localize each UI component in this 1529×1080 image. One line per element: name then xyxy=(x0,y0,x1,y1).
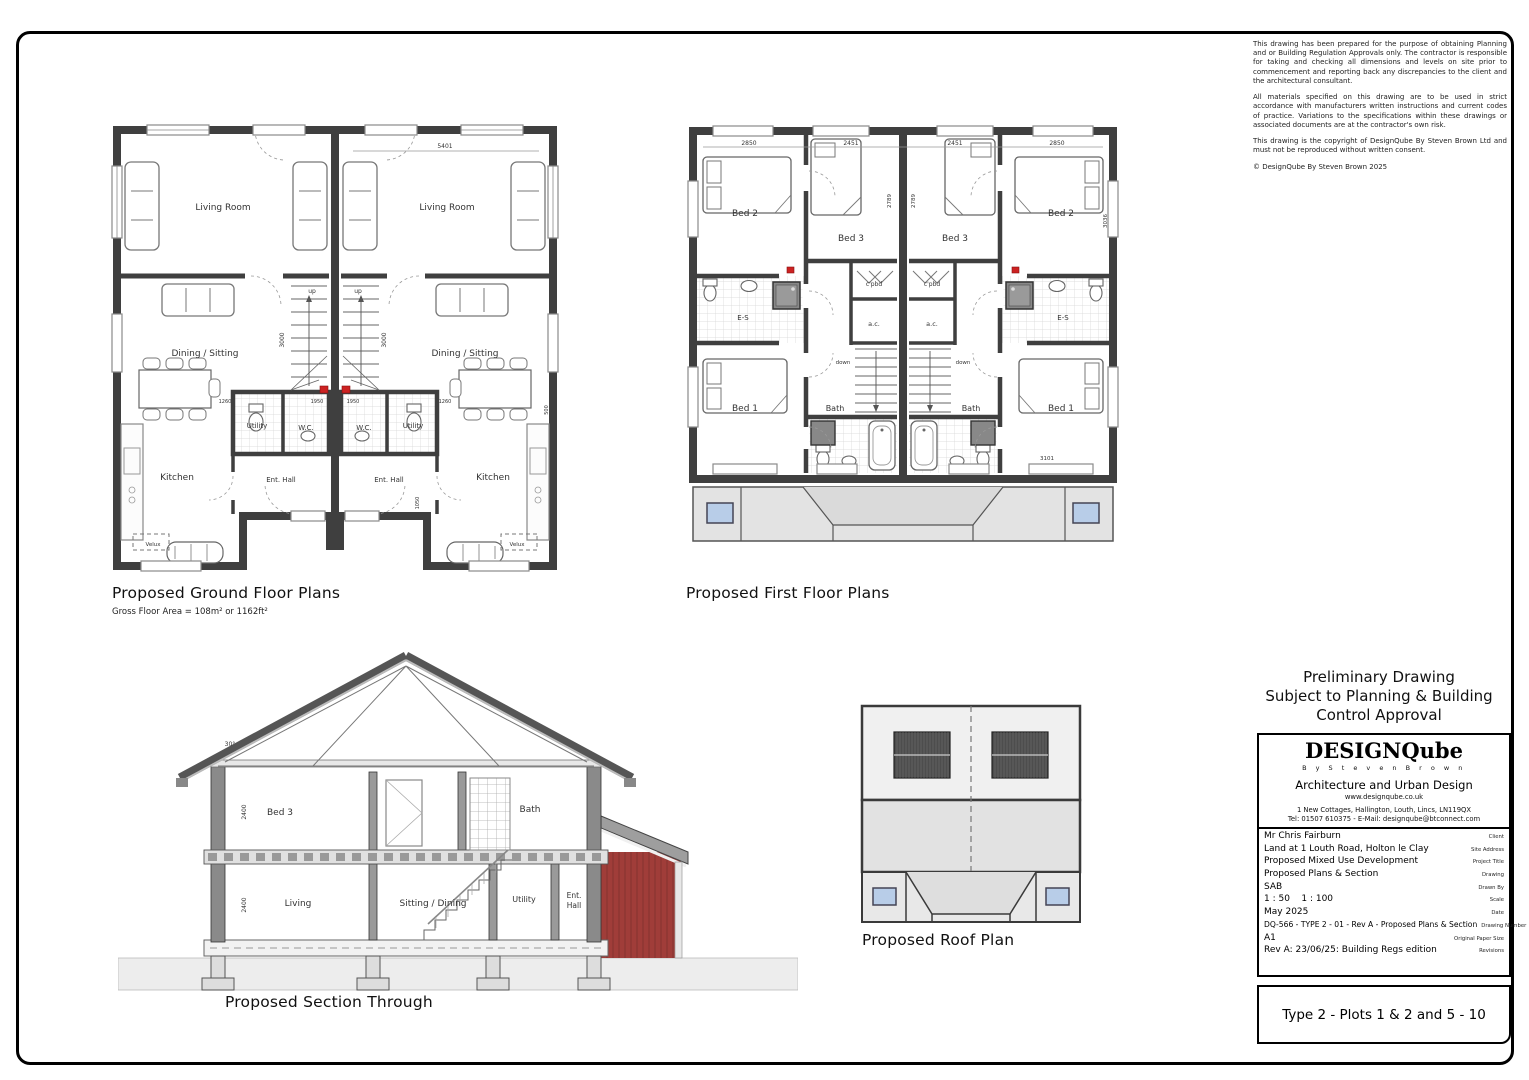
ff-room-label: Bed 1 xyxy=(732,404,758,414)
section-outbuilding xyxy=(601,816,688,958)
section-tiled-wall xyxy=(470,778,510,850)
plot-title-box: Type 2 - Plots 1 & 2 and 5 - 10 xyxy=(1257,985,1511,1044)
paper-size-value: A1 xyxy=(1264,933,1276,943)
gf-up-label: up xyxy=(354,288,362,295)
section-room-label: Bed 3 xyxy=(267,808,293,818)
gf-room-label: Kitchen xyxy=(160,473,194,483)
section-room-label: Sitting / Dining xyxy=(400,899,467,909)
drawn-by-label: Drawn By xyxy=(1478,885,1504,891)
skylight xyxy=(873,888,896,905)
gf-dim: 1950 xyxy=(311,399,324,405)
section-room-label: Ent. xyxy=(567,891,582,900)
title-block-row: Land at 1 Louth Road, Holton le Clay Sit… xyxy=(1259,844,1509,857)
ff-room-label: c'pbd xyxy=(924,281,941,288)
ff-dim: 2789 xyxy=(911,194,917,208)
ff-dim: 2451 xyxy=(843,140,858,147)
logo-subtitle: B y S t e v e n B r o w n xyxy=(1259,764,1509,772)
title-block: DESIGNQube B y S t e v e n B r o w n Arc… xyxy=(1257,733,1511,977)
gf-dim: 1050 xyxy=(415,497,421,510)
ground-floor-subtitle: Gross Floor Area = 108m² or 1162ft² xyxy=(112,607,268,617)
drawing-value: Proposed Plans & Section xyxy=(1264,869,1378,879)
title-block-row: 1 : 50 1 : 100 Scale xyxy=(1259,894,1509,907)
gf-room-label: Utility xyxy=(247,422,268,430)
project-title-value: Proposed Mixed Use Development xyxy=(1264,856,1418,866)
first-floor-title: Proposed First Floor Plans xyxy=(686,584,890,602)
drawing-number-label: Drawing Number xyxy=(1481,923,1526,929)
title-block-row: May 2025 Date xyxy=(1259,907,1509,920)
revisions-label: Revisions xyxy=(1479,948,1504,954)
gf-room-label: Ent. Hall xyxy=(266,476,296,484)
section-title: Proposed Section Through xyxy=(225,993,433,1011)
project-title-label: Project Title xyxy=(1473,859,1504,865)
ff-room-label: Bed 2 xyxy=(1048,209,1074,219)
ff-down-label: down xyxy=(836,360,851,366)
gf-room-label: Living Room xyxy=(195,203,250,213)
roof-lower-band xyxy=(862,872,1080,922)
solar-panel xyxy=(992,732,1048,778)
gf-dim: 1260 xyxy=(219,399,232,405)
date-value: May 2025 xyxy=(1264,907,1308,917)
ff-dim: 3101 xyxy=(1040,456,1054,462)
section-room-label: Living xyxy=(285,899,312,909)
disclaimer-notes: This drawing has been prepared for the p… xyxy=(1253,40,1507,179)
roof-plan-title: Proposed Roof Plan xyxy=(862,931,1014,949)
drawing-sheet: Living Room Dining / Sitting Kitchen Uti… xyxy=(0,0,1529,1080)
skylight xyxy=(707,503,733,523)
company-logo: DESIGNQube xyxy=(1259,740,1509,762)
solar-panel xyxy=(894,732,950,778)
disclaimer-paragraph: This drawing is the copyright of DesignQ… xyxy=(1253,137,1507,155)
ff-room-label: E-S xyxy=(737,314,749,322)
preliminary-line: Subject to Planning & Building xyxy=(1243,687,1515,706)
skylight xyxy=(1046,888,1069,905)
title-block-row: Proposed Mixed Use Development Project T… xyxy=(1259,856,1509,869)
gf-party-wall-fin xyxy=(326,516,344,550)
title-block-rows: Mr Chris Fairburn Client Land at 1 Louth… xyxy=(1259,829,1509,960)
ff-dim: 2789 xyxy=(887,194,893,208)
first-floor-plan: Bed 2 Bed 3 E-S c'pbd a.c. down Bed 1 Ba… xyxy=(683,121,1123,553)
scale-value: 1 : 50 1 : 100 xyxy=(1264,894,1333,904)
revisions-value: Rev A: 23/06/25: Building Regs edition xyxy=(1264,945,1437,955)
firm-address: 1 New Cottages, Hallington, Louth, Lincs… xyxy=(1259,806,1509,814)
ground-floor-title: Proposed Ground Floor Plans xyxy=(112,584,340,602)
gf-room-label: Ent. Hall xyxy=(374,476,404,484)
drawn-by-value: SAB xyxy=(1264,882,1282,892)
ff-room-label: Bed 2 xyxy=(732,209,758,219)
scale-label: Scale xyxy=(1490,897,1504,903)
date-label: Date xyxy=(1491,910,1504,916)
gf-room-label: Kitchen xyxy=(476,473,510,483)
gf-room-label: W.C. xyxy=(298,424,313,432)
disclaimer-paragraph: All materials specified on this drawing … xyxy=(1253,93,1507,130)
ff-room-label: c'pbd xyxy=(866,281,883,288)
section-dim: 2400 xyxy=(241,897,248,912)
plot-title: Type 2 - Plots 1 & 2 and 5 - 10 xyxy=(1282,1007,1486,1023)
gf-dim: 3000 xyxy=(279,332,286,347)
gf-dim: 500 xyxy=(544,405,550,415)
site-address-label: Site Address xyxy=(1471,847,1504,853)
title-block-row: Proposed Plans & Section Drawing xyxy=(1259,869,1509,882)
ff-room-label: a.c. xyxy=(868,320,880,328)
gf-up-label: up xyxy=(308,288,316,295)
gf-dim: 5401 xyxy=(437,143,452,150)
drawing-label: Drawing xyxy=(1482,872,1504,878)
client-value: Mr Chris Fairburn xyxy=(1264,831,1341,841)
gf-room-label: Living Room xyxy=(419,203,474,213)
ff-room-label: E-S xyxy=(1057,314,1069,322)
ff-dim: 2451 xyxy=(947,140,962,147)
section-room-label: Bath xyxy=(520,805,541,815)
gf-dim: 3000 xyxy=(381,332,388,347)
title-block-header: DESIGNQube B y S t e v e n B r o w n Arc… xyxy=(1259,735,1509,829)
ff-dim: 2850 xyxy=(741,140,756,147)
section-pitch-label: 30° xyxy=(225,741,236,748)
preliminary-line: Preliminary Drawing xyxy=(1243,668,1515,687)
ff-dim: 2850 xyxy=(1049,140,1064,147)
title-block-row: DQ-566 - TYPE 2 - 01 - Rev A - Proposed … xyxy=(1259,920,1509,933)
gf-dim: 1260 xyxy=(439,399,452,405)
ff-room-label: a.c. xyxy=(926,320,938,328)
title-block-row: Mr Chris Fairburn Client xyxy=(1259,831,1509,844)
ff-party-wall xyxy=(899,131,907,479)
gf-dim: 1950 xyxy=(347,399,360,405)
gf-room-label: W.C. xyxy=(356,424,371,432)
firm-contact: Tel: 01507 610375 - E-Mail: designqube@b… xyxy=(1259,815,1509,823)
ff-lower-roof xyxy=(693,487,1113,541)
title-block-row: Rev A: 23/06/25: Building Regs edition R… xyxy=(1259,945,1509,958)
firm-name: Architecture and Urban Design xyxy=(1259,778,1509,792)
skylight xyxy=(1073,503,1099,523)
ff-room-label: Bed 3 xyxy=(838,234,864,244)
site-address-value: Land at 1 Louth Road, Holton le Clay xyxy=(1264,844,1429,854)
section-door xyxy=(386,780,422,846)
section-room-label: Hall xyxy=(567,901,581,910)
ff-room-label: Bath xyxy=(962,404,981,413)
preliminary-note: Preliminary Drawing Subject to Planning … xyxy=(1243,668,1515,725)
client-label: Client xyxy=(1489,834,1504,840)
gf-party-wall xyxy=(331,130,339,516)
ff-dim: 3036 xyxy=(1103,214,1109,228)
title-block-row: A1 Original Paper Size xyxy=(1259,933,1509,946)
firm-website: www.designqube.co.uk xyxy=(1259,793,1509,801)
disclaimer-paragraph: This drawing has been prepared for the p… xyxy=(1253,40,1507,86)
section-room-label: Utility xyxy=(512,895,536,904)
ff-down-label: down xyxy=(956,360,971,366)
gf-velux-label: Velux xyxy=(510,542,526,548)
ff-room-label: Bed 3 xyxy=(942,234,968,244)
gf-room-label: Dining / Sitting xyxy=(432,349,499,359)
section-dim: 2400 xyxy=(241,804,248,819)
copyright-line: © DesignQube By Steven Brown 2025 xyxy=(1253,163,1507,172)
ff-room-label: Bath xyxy=(826,404,845,413)
drawing-number-value: DQ-566 - TYPE 2 - 01 - Rev A - Proposed … xyxy=(1264,920,1477,929)
ground-floor-plan: Living Room Dining / Sitting Kitchen Uti… xyxy=(105,118,565,580)
section-drawing: Bed 3 Bath Living Sitting / Dining Utili… xyxy=(118,640,798,998)
title-block-row: SAB Drawn By xyxy=(1259,882,1509,895)
paper-size-label: Original Paper Size xyxy=(1454,936,1504,942)
gf-room-label: Dining / Sitting xyxy=(172,349,239,359)
preliminary-line: Control Approval xyxy=(1243,706,1515,725)
gf-room-label: Utility xyxy=(403,422,424,430)
gf-velux-label: Velux xyxy=(146,542,162,548)
ff-room-label: Bed 1 xyxy=(1048,404,1074,414)
roof-plan xyxy=(856,700,1086,928)
